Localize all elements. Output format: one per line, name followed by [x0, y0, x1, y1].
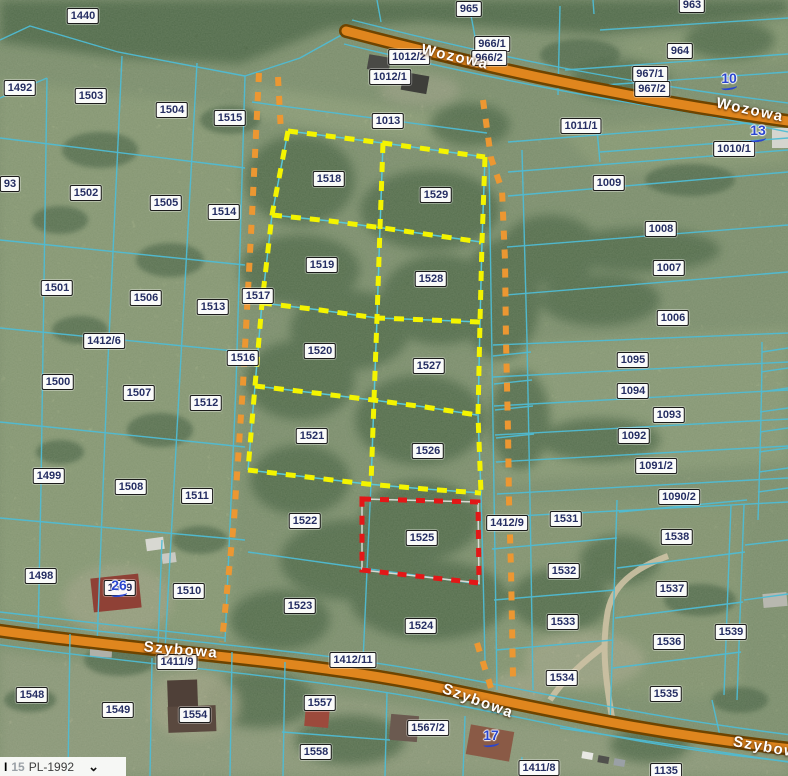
scale-number: 15: [11, 760, 24, 774]
map-svg: [0, 0, 788, 776]
crs-selector[interactable]: I 15 PL-1992 ⌄: [0, 757, 126, 776]
cursor-mark: I: [4, 760, 7, 774]
map-canvas[interactable]: 14409659631492150315041515966/1966/21012…: [0, 0, 788, 776]
chevron-down-icon[interactable]: ⌄: [88, 759, 99, 775]
crs-label: PL-1992: [29, 760, 74, 774]
